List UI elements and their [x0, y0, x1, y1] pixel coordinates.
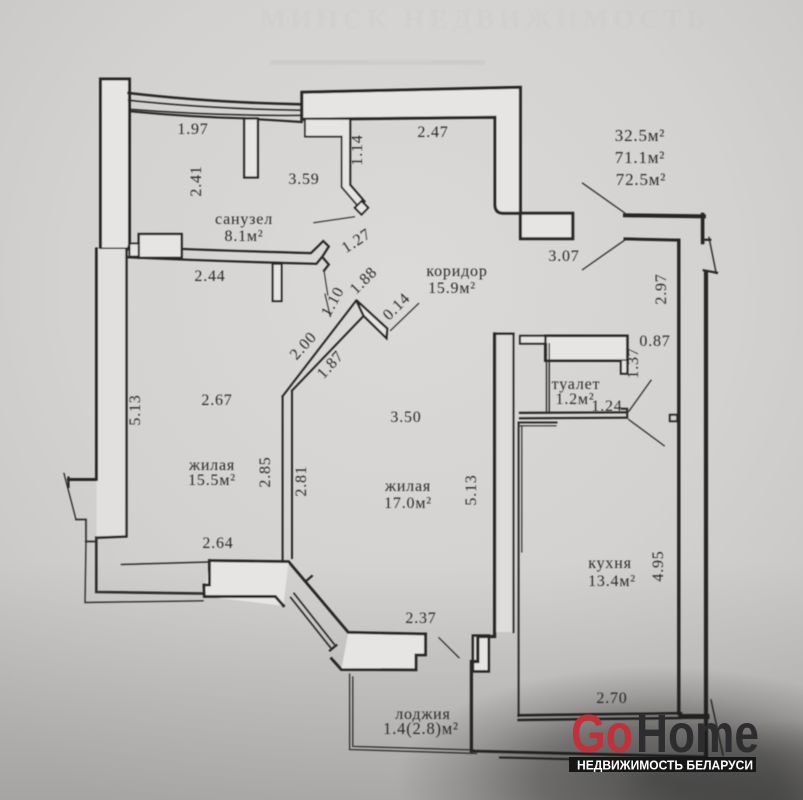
svg-text:2.97: 2.97 [653, 273, 670, 304]
svg-text:2.85: 2.85 [257, 456, 274, 487]
svg-text:32.5м²: 32.5м² [615, 126, 665, 145]
svg-text:2.81: 2.81 [293, 465, 310, 496]
svg-text:2.47: 2.47 [417, 124, 448, 141]
svg-text:1.97: 1.97 [177, 121, 208, 138]
svg-text:3.59: 3.59 [288, 171, 319, 188]
svg-text:коридор: коридор [426, 263, 487, 280]
svg-text:1.37: 1.37 [625, 347, 642, 378]
svg-text:13.4м²: 13.4м² [588, 573, 636, 590]
svg-text:1.24: 1.24 [591, 398, 622, 415]
svg-text:4.95: 4.95 [650, 550, 667, 581]
svg-text:кухня: кухня [588, 555, 631, 572]
svg-text:1.14: 1.14 [349, 134, 366, 165]
svg-text:3.07: 3.07 [548, 248, 579, 265]
svg-text:15.9м²: 15.9м² [428, 280, 476, 297]
svg-text:15.5м²: 15.5м² [188, 472, 236, 489]
svg-text:17.0м²: 17.0м² [384, 495, 432, 512]
svg-text:3.50: 3.50 [390, 409, 421, 426]
svg-text:71.1м²: 71.1м² [615, 148, 665, 167]
svg-text:жилая: жилая [384, 478, 431, 495]
svg-text:2.44: 2.44 [194, 268, 225, 285]
svg-text:1.2м²: 1.2м² [556, 391, 595, 408]
svg-text:НЕДВИЖИМОСТЬ БЕЛАРУСИ: НЕДВИЖИМОСТЬ БЕЛАРУСИ [577, 758, 753, 773]
svg-text:5.13: 5.13 [463, 474, 480, 505]
svg-text:2.64: 2.64 [202, 535, 233, 552]
svg-text:2.41: 2.41 [188, 165, 205, 196]
svg-text:2.67: 2.67 [201, 392, 232, 409]
svg-text:Go: Go [571, 704, 633, 764]
svg-text:8.1м²: 8.1м² [225, 228, 264, 245]
svg-text:0.87: 0.87 [639, 333, 670, 350]
svg-text:72.5м²: 72.5м² [616, 170, 666, 189]
svg-text:2.37: 2.37 [405, 610, 436, 627]
svg-text:Home: Home [636, 704, 759, 764]
svg-text:санузел: санузел [215, 211, 273, 228]
svg-text:МИНСК НЕДВИЖИМОСТЬ: МИНСК НЕДВИЖИМОСТЬ [260, 4, 710, 34]
svg-text:5.13: 5.13 [127, 394, 144, 425]
